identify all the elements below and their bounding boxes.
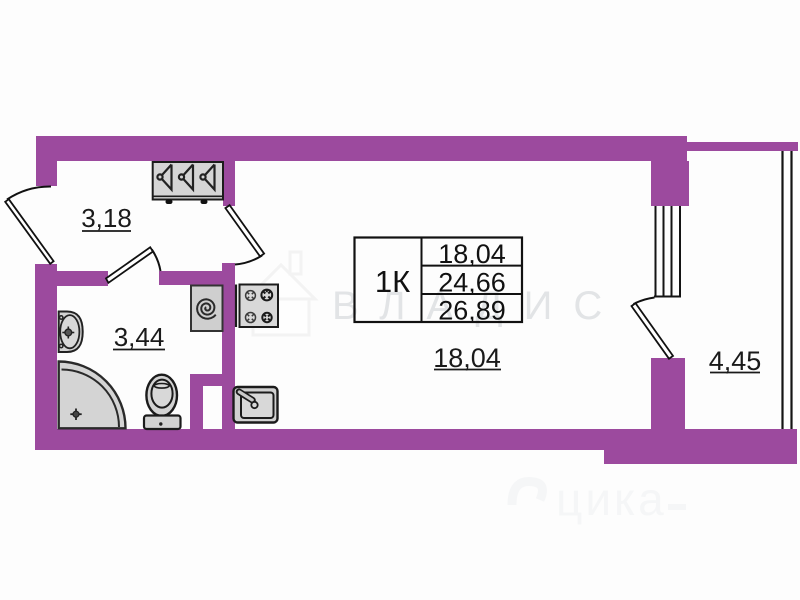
svg-text:1К: 1К — [375, 264, 410, 299]
svg-text:3,44: 3,44 — [114, 322, 165, 352]
svg-text:18,04: 18,04 — [438, 239, 506, 269]
svg-text:18,04: 18,04 — [433, 343, 501, 373]
svg-text:4,45: 4,45 — [709, 346, 762, 376]
svg-text:26,89: 26,89 — [438, 296, 506, 326]
svg-text:цика: цика — [556, 473, 667, 525]
svg-text:24,66: 24,66 — [438, 268, 506, 298]
svg-text:3,18: 3,18 — [81, 203, 132, 233]
